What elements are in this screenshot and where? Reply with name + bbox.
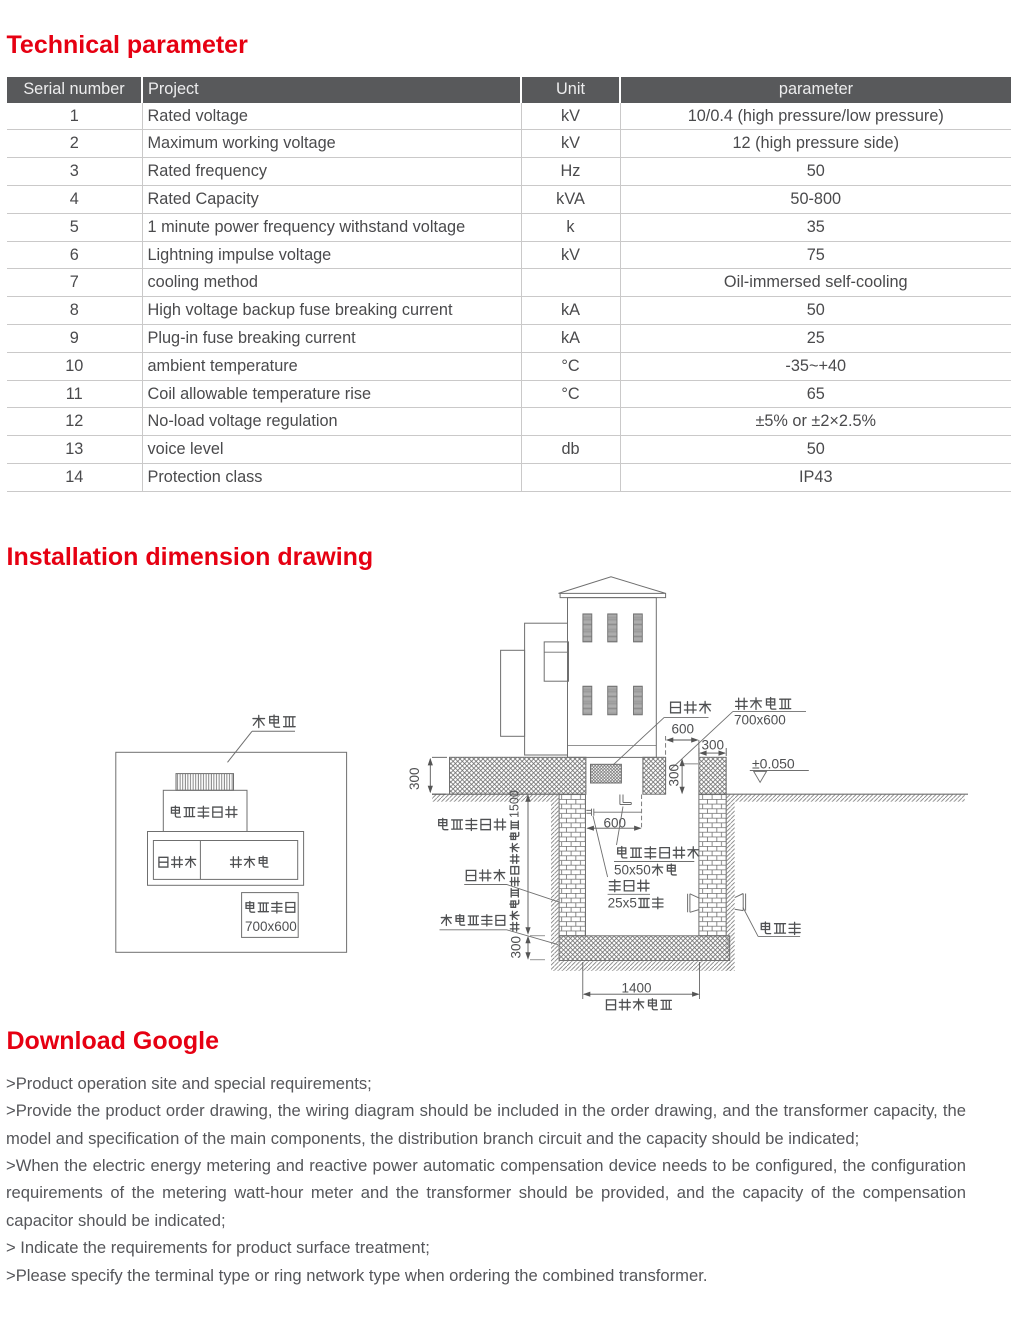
svg-text:±0.050: ±0.050	[752, 756, 795, 772]
svg-text:300: 300	[407, 767, 422, 790]
svg-text:50x50: 50x50	[614, 863, 651, 878]
svg-text:600: 600	[672, 722, 695, 737]
svg-text:25x5: 25x5	[608, 896, 637, 911]
svg-text:1500: 1500	[508, 790, 522, 818]
svg-text:1400: 1400	[622, 981, 652, 996]
svg-text:700x600: 700x600	[734, 713, 786, 728]
svg-text:300: 300	[702, 738, 725, 753]
svg-text:300: 300	[509, 936, 524, 959]
svg-text:700x600: 700x600	[245, 919, 297, 934]
svg-text:300: 300	[667, 764, 682, 787]
